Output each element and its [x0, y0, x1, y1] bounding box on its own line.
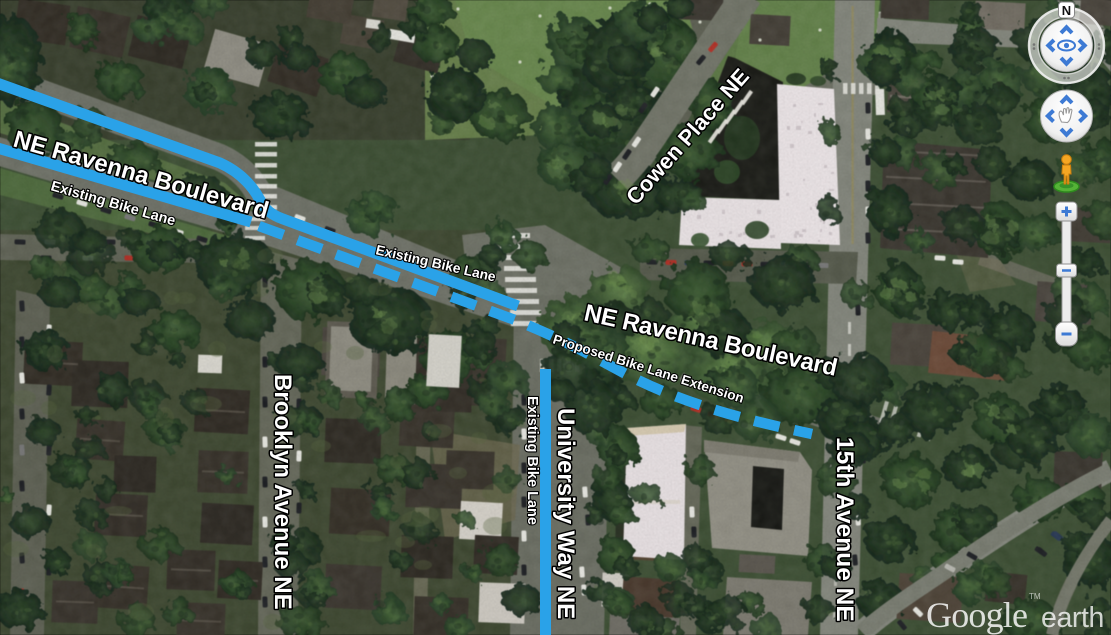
- svg-text:Google: Google: [926, 595, 1027, 635]
- svg-text:earth: earth: [1041, 602, 1104, 634]
- svg-text:University Way NE: University Way NE: [552, 408, 579, 619]
- svg-text:Brooklyn Avenue NE: Brooklyn Avenue NE: [269, 374, 296, 610]
- svg-text:TM: TM: [1029, 592, 1041, 601]
- svg-text:N: N: [1062, 3, 1071, 18]
- svg-text:Existing Bike Lane: Existing Bike Lane: [524, 396, 540, 525]
- svg-text:15th Avenue NE: 15th Avenue NE: [831, 437, 858, 622]
